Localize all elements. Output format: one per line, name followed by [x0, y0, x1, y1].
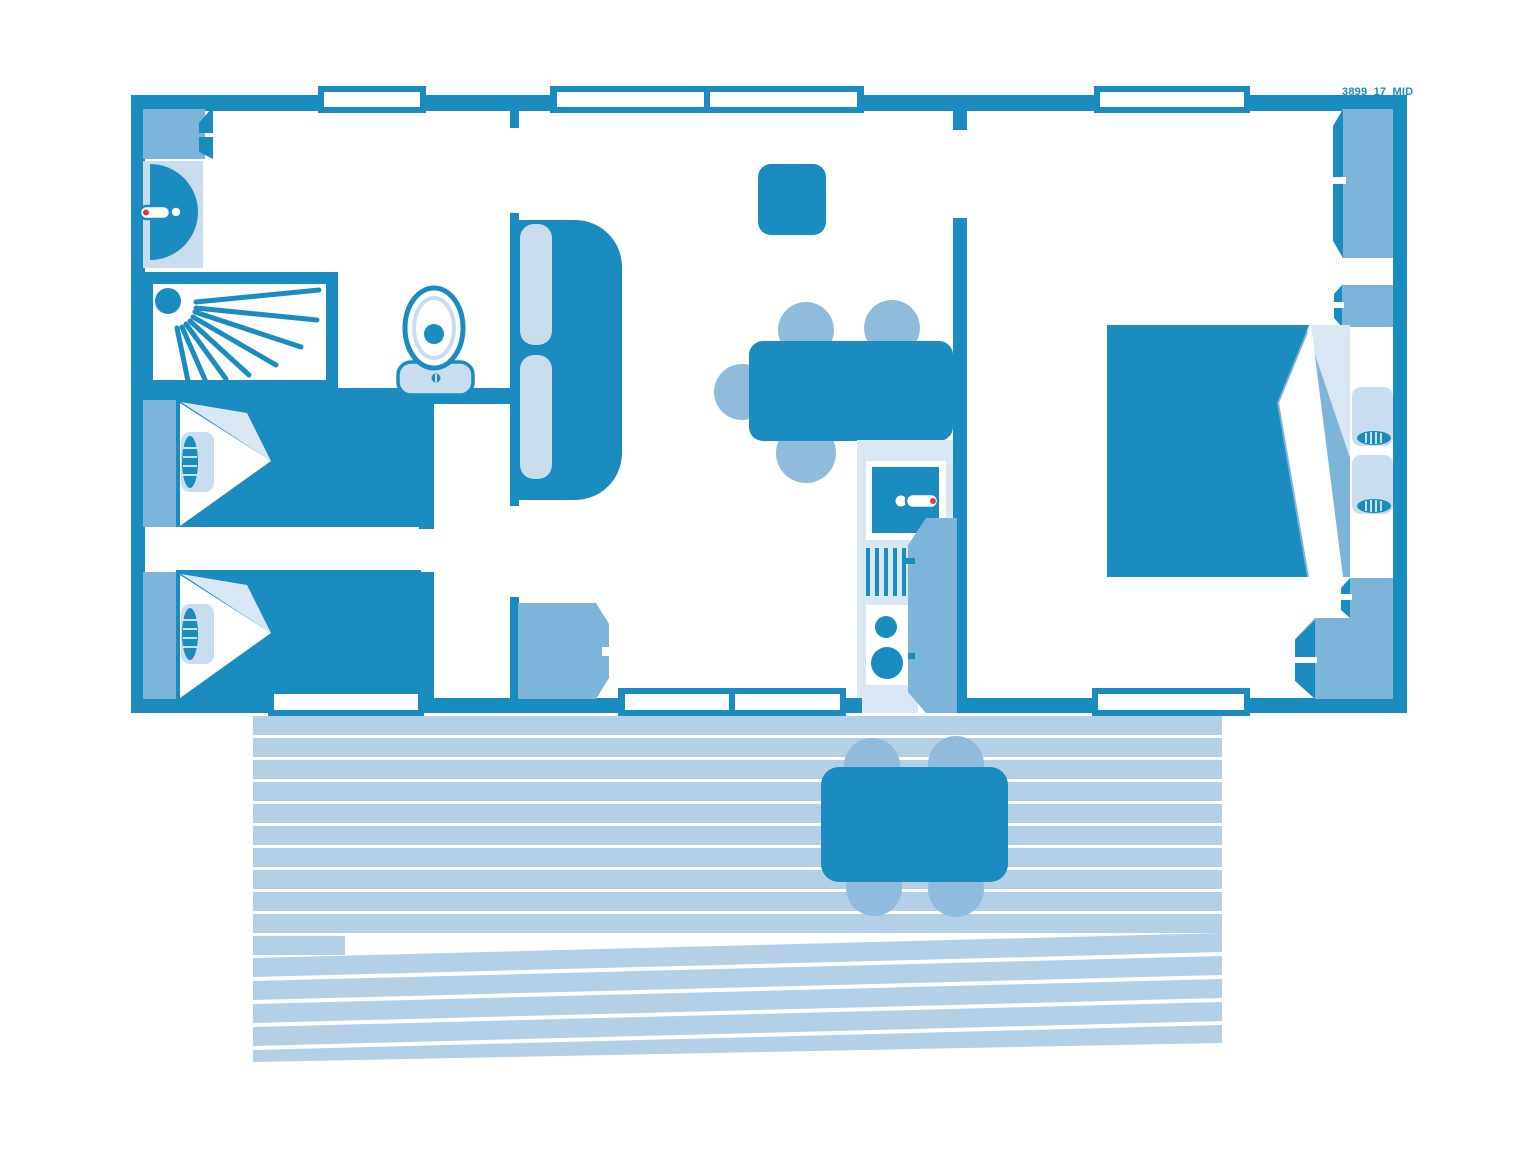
- wall-twin-bedroom-lower: [419, 572, 434, 698]
- sofa-cushion: [520, 355, 552, 479]
- deck-planks: [253, 716, 1222, 1062]
- bedroom-master: [1107, 109, 1393, 699]
- wall-sofa-back: [510, 213, 519, 506]
- window: [268, 688, 424, 716]
- window: [1092, 688, 1250, 716]
- basin-faucet-knob: [171, 207, 182, 218]
- faucet-hot-dot: [143, 210, 149, 216]
- kitchen: [857, 440, 957, 713]
- wall-hall-lower: [510, 597, 519, 698]
- faucet-hot-dot: [930, 498, 936, 504]
- toilet: [398, 288, 473, 395]
- bedroom-twin: [143, 398, 421, 699]
- corner-dresser: [1293, 618, 1393, 699]
- window: [1094, 86, 1250, 113]
- floor-plan-drawing: [0, 0, 1536, 1152]
- sofa-cushion: [520, 224, 552, 345]
- window: [318, 86, 426, 113]
- entry-threshold: [862, 698, 918, 713]
- kitchen-tall-unit: [908, 518, 957, 713]
- double-bed: [1107, 325, 1393, 577]
- hall-cabinet-split: [602, 647, 615, 656]
- dining-table: [749, 341, 953, 441]
- wall-twin-bedroom-upper: [419, 388, 434, 529]
- wall-right: [1393, 95, 1407, 713]
- deck-plank-stub: [253, 936, 345, 955]
- bathroom: [140, 109, 473, 395]
- hallway: [518, 603, 615, 699]
- hall-cabinet: [518, 603, 609, 699]
- burner-large: [871, 647, 903, 679]
- deck-table: [821, 767, 1008, 882]
- side-table: [758, 164, 826, 235]
- dresser-door: [1295, 620, 1315, 657]
- floor-plan-page: 3899_17_MID: [0, 0, 1536, 1152]
- burner-small: [875, 616, 897, 638]
- plan-reference-label: 3899_17_MID: [1342, 86, 1412, 98]
- mattress-edge: [143, 400, 178, 527]
- deck: [253, 716, 1222, 1062]
- wall-stub-master: [953, 111, 967, 130]
- unit: [131, 86, 1407, 716]
- mattress-edge: [143, 572, 178, 699]
- bathroom-cabinet: [143, 109, 205, 159]
- wardrobe-large: [1330, 109, 1393, 258]
- bed-blanket: [1107, 325, 1309, 577]
- wall-stub-hall: [510, 111, 519, 128]
- single-bed: [143, 398, 421, 527]
- window-double: [550, 86, 864, 113]
- single-bed: [143, 570, 421, 699]
- unit-handle: [903, 558, 915, 564]
- dresser-door: [1295, 663, 1315, 699]
- wardrobe-small: [1332, 285, 1393, 327]
- bedside-unit: [1339, 578, 1393, 618]
- window-double: [618, 688, 846, 716]
